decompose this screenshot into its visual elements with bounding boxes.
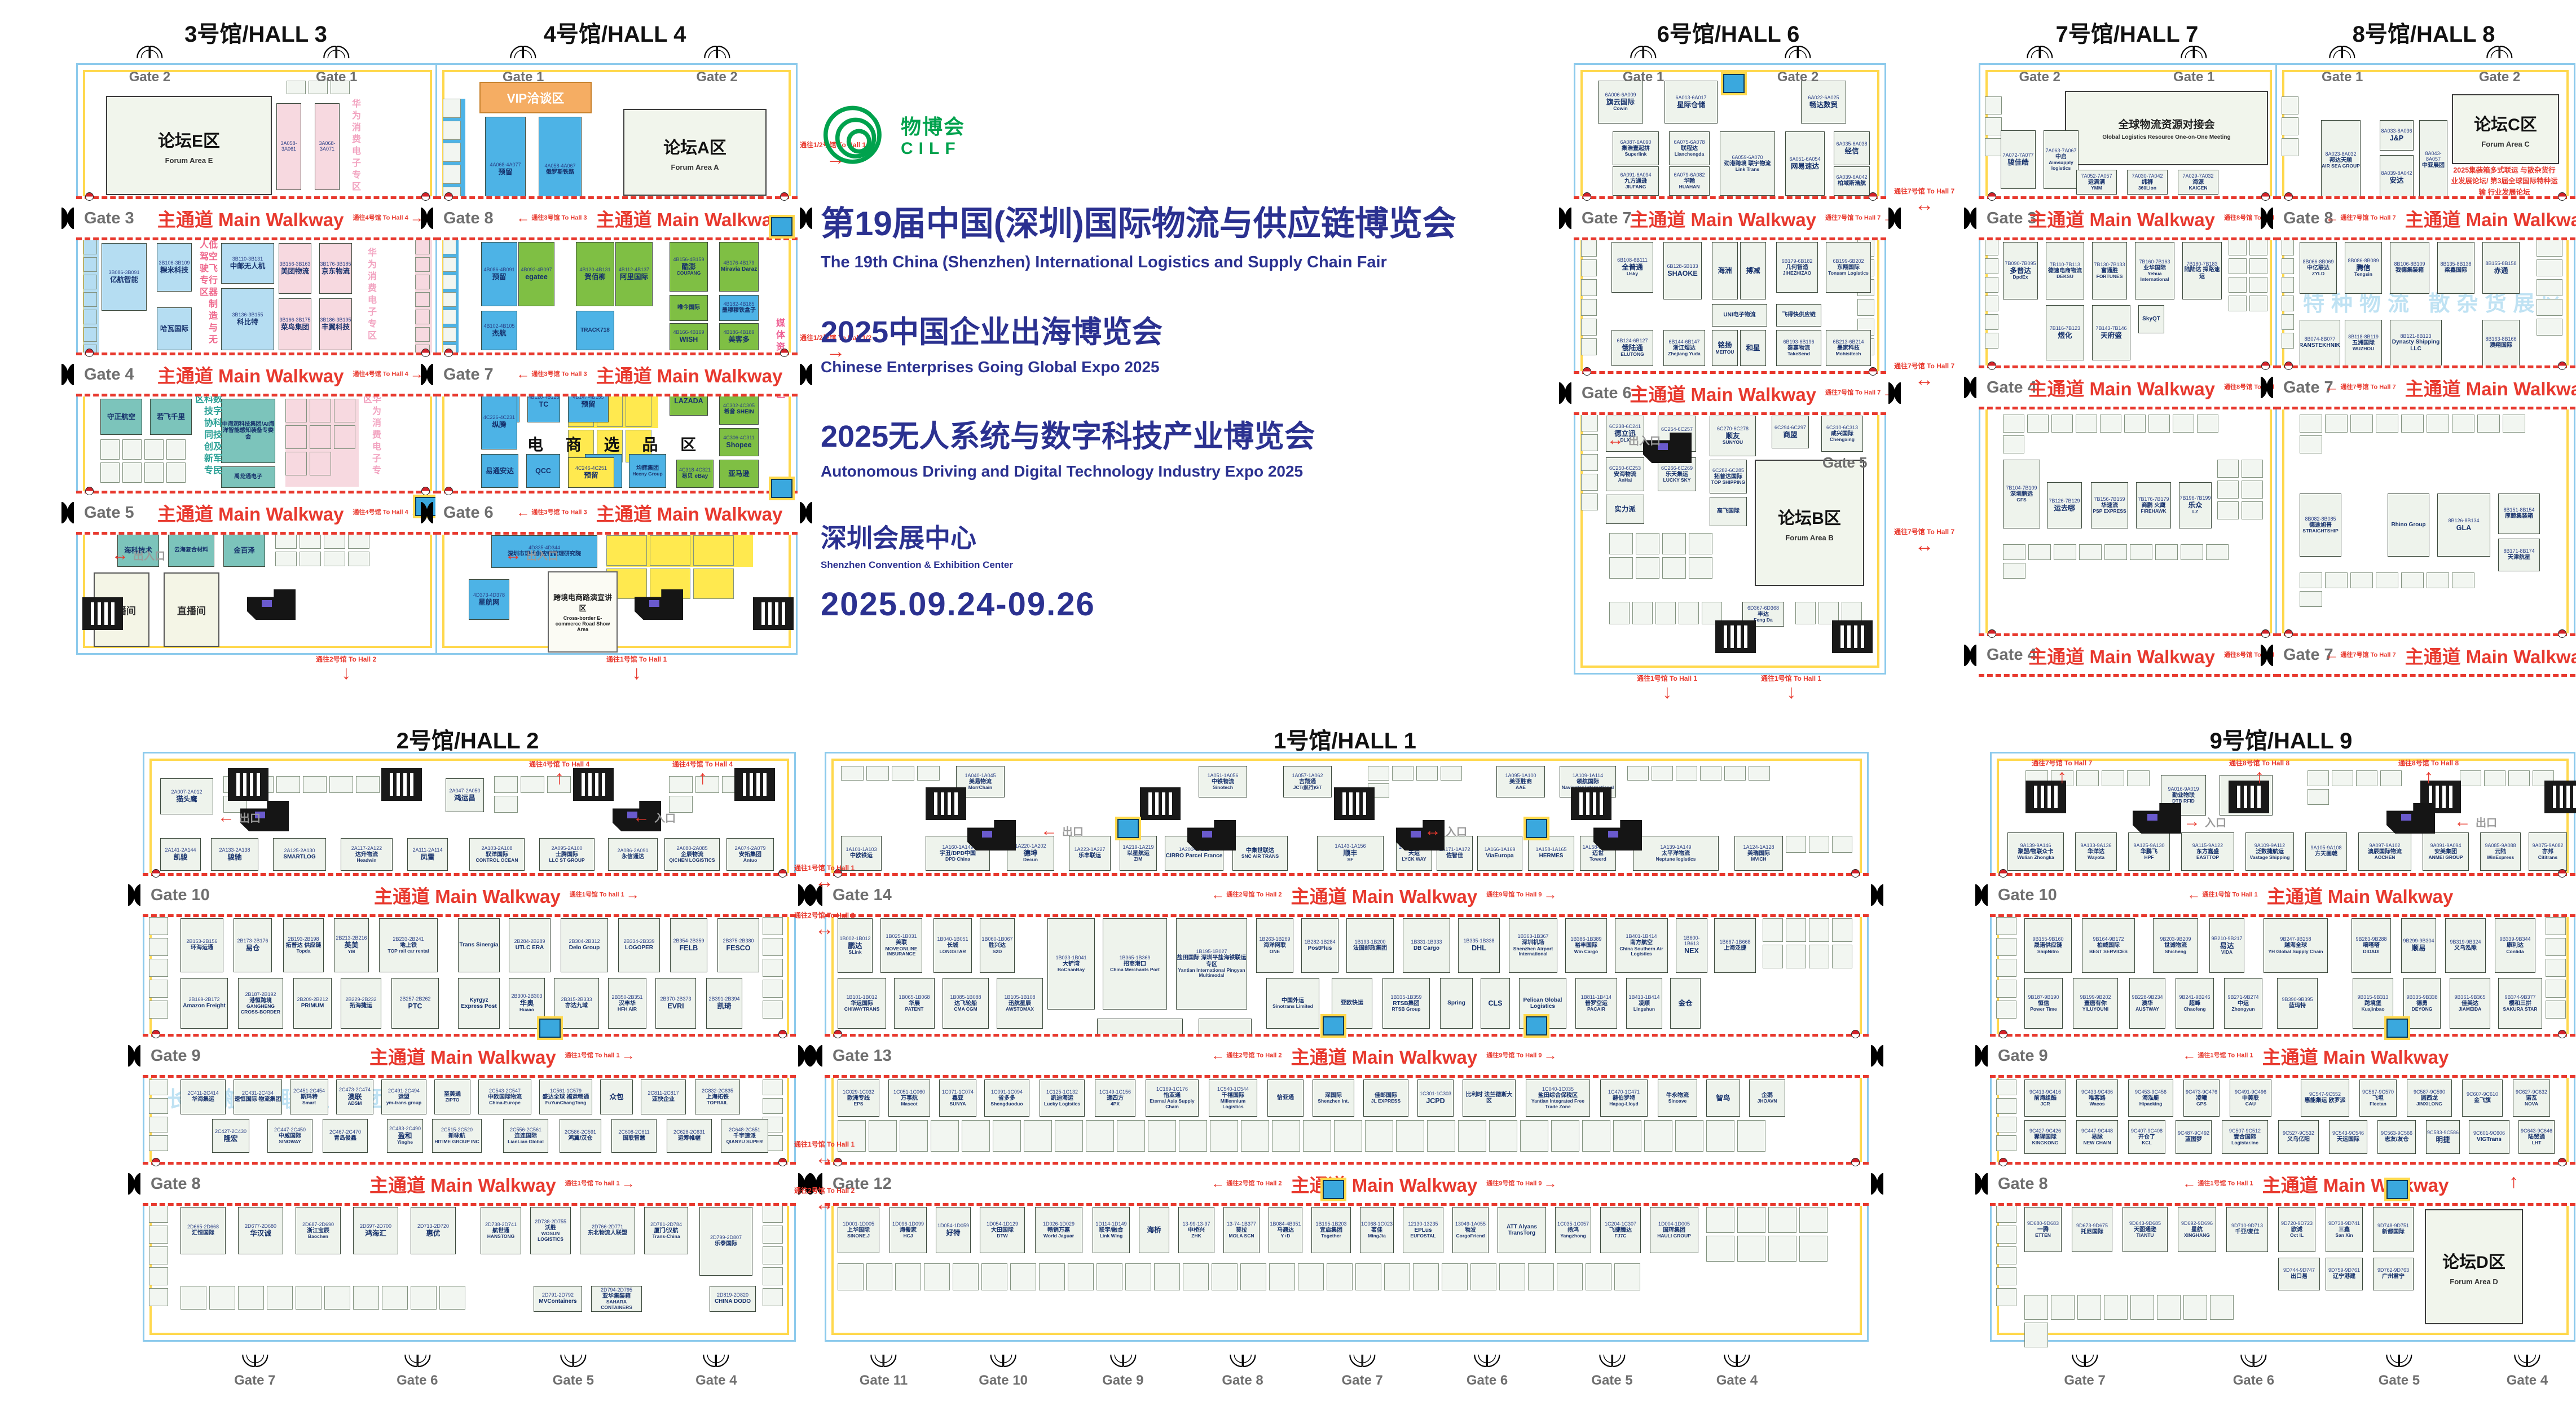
booth: 和星	[1740, 330, 1766, 366]
gate-label: Gate 1	[2173, 69, 2214, 85]
booth-sublabel: EPS	[853, 1101, 863, 1107]
booth: 6A039-6A042柏域斯浩航	[1834, 166, 1870, 196]
booth-label: LOGOPER	[625, 945, 653, 951]
booth: 9B164-9B172柏威国际BEST SERVICES	[2082, 918, 2135, 973]
booth	[209, 1286, 235, 1310]
booth-sublabel: HAULI GROUP	[1657, 1233, 1691, 1239]
booth-code: 1B065-1B068	[895, 995, 934, 1001]
booth-code: 4B120-4B131	[576, 267, 614, 273]
booth: 2C451-2C454斯玛特Smart	[290, 1079, 328, 1114]
booth	[2104, 1295, 2128, 1320]
booth-label: 海洲	[1718, 267, 1732, 275]
booth-sublabel: Yantian Integrated Free Trade Zone	[1526, 1099, 1589, 1109]
booth-code: 9D710-9D713	[2227, 1223, 2267, 1229]
booth-code: 9D759-9D761	[2326, 1268, 2362, 1273]
booth-code: 1C561-1C579	[540, 1089, 592, 1094]
bottom-gate: Gate 7	[234, 1351, 275, 1389]
vzone-area: 华为消费电子专区	[363, 394, 378, 488]
forklift-icon	[1187, 820, 1236, 850]
booth-code: 9B335-9B338	[2404, 995, 2440, 1001]
booth	[1662, 557, 1686, 579]
booth: 6B193-6B196泰嘉物流TakeSend	[1776, 330, 1821, 366]
booth-sublabel: DTB RFID	[2172, 799, 2195, 804]
booth: 1A051-1A056中铁物流Sinotech	[1199, 766, 1247, 797]
booth	[2537, 319, 2562, 336]
gate-pin-icon	[1988, 629, 1996, 638]
booth-label: 越海全球	[2284, 942, 2307, 949]
booth: 1B101-1B012华运国际CHIWAYTRANS	[838, 978, 886, 1029]
booth: 9C607-9C610金飞旗	[2462, 1079, 2503, 1117]
elevator-icon	[539, 1019, 561, 1038]
main-walkway-2: Gate 9← 通往1号馆 To Hall 1主通道 Main Walkway	[1990, 1034, 2575, 1078]
booth-code: 9D738-9D741	[2326, 1221, 2362, 1227]
booth-code: 2C648-2C651	[721, 1127, 768, 1133]
booth-code: 2A086-2A091	[609, 848, 657, 854]
booth: 1B040-1B051长城LONGSTAR	[933, 918, 972, 973]
direction-arrow-icon: ←	[633, 808, 650, 827]
booth	[2546, 1001, 2566, 1019]
booth-code: 9C543-9C546	[2330, 1131, 2367, 1136]
walkway-center: 主通道 Main Walkway通往7号馆 To Hall 7 →	[1640, 380, 1886, 407]
booth-code: 6A035-6A038	[1834, 142, 1869, 147]
stairs-icon	[734, 768, 775, 801]
booth: 1C029-1C032欧洲专线EPS	[838, 1079, 879, 1117]
booth-sublabel: Yangzhong	[1560, 1233, 1586, 1239]
gate-door-icon	[1110, 1351, 1136, 1367]
booth	[2376, 572, 2398, 588]
main-walkway-1: Gate 3主通道 Main Walkway通往8号馆 To Hall 8 →	[1979, 196, 2279, 240]
top-gate: Gate 2	[1777, 46, 1818, 85]
booth	[2308, 770, 2329, 786]
booth-label: GLA	[2456, 524, 2471, 532]
booth-sublabel: Shengduoduo	[990, 1101, 1023, 1107]
elevator-icon	[771, 479, 792, 498]
booth-code: 8B086-8B089	[2345, 258, 2381, 264]
booth	[2546, 980, 2566, 998]
booth-code: 9C507-9C512	[2222, 1129, 2267, 1134]
booth	[2054, 544, 2076, 560]
booth-sublabel: COUPANG	[677, 271, 701, 276]
booth-code: 9C583-9C586	[2427, 1130, 2459, 1136]
booth: 1B195-1B203宜启集团Together	[1311, 1207, 1351, 1253]
booth: 6A022-6A025畅达数贸	[1801, 81, 1846, 124]
booth: 2D794-2D795亚华集装箱SAHARA CONTAINERS	[591, 1286, 642, 1312]
booth-label: 鸿海汇	[365, 1229, 386, 1237]
booth	[1768, 1207, 1796, 1233]
booth-sublabel: AIR SEA GROUP	[2322, 164, 2360, 169]
booth	[144, 462, 164, 483]
gate-label: Gate 8	[1222, 1373, 1263, 1389]
booth: 6A006-6A009旗云国际Cowin	[1598, 81, 1643, 124]
gate-label-left: Gate 7	[435, 365, 501, 384]
booth	[1996, 1079, 2016, 1095]
booth-sublabel: QIANYU SUPER	[726, 1139, 763, 1144]
booth-label: 我德集装箱	[2396, 267, 2424, 274]
booth-sublabel: ZIM	[1134, 857, 1143, 862]
booth-code: 4B102-4B105	[482, 324, 517, 329]
booth-label: 柏域斯浩航	[1838, 180, 1866, 187]
gate-pin-icon	[1988, 362, 1996, 370]
booth-sublabel: WUZHOU	[2353, 346, 2374, 351]
booth-sublabel: TOP rail car rental	[388, 949, 429, 954]
booth: 8B126-8B134GLA	[2437, 493, 2490, 557]
booth-sublabel: Y+D	[1281, 1233, 1291, 1239]
elevator-icon	[2386, 1019, 2408, 1038]
booth-sublabel: Hipacking	[2139, 1101, 2163, 1107]
booth	[693, 535, 734, 566]
booth-code: 4C306-4C311	[720, 435, 758, 441]
booth-code: 6A051-6A054	[1786, 157, 1824, 162]
booth	[2282, 333, 2294, 349]
booth: 至美通ZIPTO	[434, 1079, 470, 1114]
booth-code: 2D799-2D807	[700, 1235, 752, 1241]
booth-cluster	[1996, 1205, 2020, 1306]
booth: 比利时 法兰德斯大区	[1463, 1079, 1516, 1117]
booth	[324, 552, 345, 566]
to-hall-arrow-icon: ↑	[2254, 767, 2264, 786]
booth-cluster	[763, 917, 786, 1024]
booth	[2217, 501, 2239, 519]
gate-label: Gate 1	[1623, 69, 1664, 85]
booth: 7B196-7B199乐众LZ	[2179, 482, 2212, 528]
booth-code: 8B074-8B077	[2300, 337, 2340, 342]
booth: 1C040-1C035盐田综合保税区Yantian Integrated Fre…	[1526, 1079, 1590, 1117]
booth-sublabel: YMM	[2091, 186, 2102, 191]
booth-code: 9B187-9B190	[2025, 995, 2062, 1001]
booth-cluster	[275, 534, 377, 568]
booth-label: 胜兴达	[989, 942, 1006, 949]
booth	[2460, 770, 2481, 786]
booth-code: 2B370-2B373	[656, 997, 695, 1002]
booth: 1C540-1C544千禧国际Millennium Logistics	[1209, 1079, 1257, 1117]
booth: 海桥	[1139, 1207, 1169, 1253]
booth	[100, 439, 120, 460]
gate-door-icon	[560, 1351, 586, 1367]
booth-label: 经信	[1844, 147, 1859, 155]
booth: 6A059-6A070劲港跨境 联宇物流Link Trans	[1720, 131, 1775, 196]
booth: 2C411-2C414华海集运	[180, 1079, 226, 1114]
booth-label: 搏减	[1746, 267, 1760, 275]
booth	[1985, 240, 1998, 255]
booth: 金仓	[1670, 978, 1701, 1029]
walkway-label: 主通道 Main Walkway	[2262, 1170, 2449, 1197]
booth-sublabel: WinExpress	[2487, 855, 2515, 860]
booth-label: LAZADA	[674, 397, 703, 405]
booth	[166, 439, 186, 460]
booth-sublabel: SLink	[848, 950, 861, 955]
booth-code: 9A016-9A019	[2161, 787, 2205, 792]
booth: 1A124-1A128美瑞国际MVICH	[1734, 836, 1783, 871]
booth-code: 4C318-4C321	[677, 468, 713, 473]
hall-8: 论坛C区Forum Area C2025集装箱多式联运 与散杂货行业发展论坛/ …	[2275, 63, 2575, 675]
booth-code: 4B086-4B091	[482, 267, 517, 273]
booth-sublabel: Huaao	[519, 1007, 534, 1012]
booth-label: 中海润科技集团/AI海洋智能感知装备专委会	[222, 421, 275, 441]
booth-sublabel: DIDADI	[2363, 949, 2379, 954]
entrance-label: ↔入口	[1424, 821, 1467, 840]
booth-label: 英美	[344, 941, 358, 949]
booth-code: 6A059-6A070	[1720, 155, 1774, 161]
booth	[285, 452, 307, 475]
booth-label: 运去哪	[2054, 504, 2075, 512]
hall-7-title: 7号馆/HALL 7	[2056, 16, 2199, 49]
booth	[2325, 572, 2348, 588]
booth: 9B319-9B324义乌泓隙	[2445, 918, 2486, 973]
booth-sublabel: ANMEI GROUP	[2429, 855, 2463, 860]
booth: 9D738-9D741三鑫San Xin	[2326, 1207, 2363, 1252]
walkway-note: 通往4号馆 To Hall 4 →	[353, 505, 424, 521]
booth	[1581, 493, 1598, 510]
booth-sublabel: MingJia	[1368, 1233, 1386, 1239]
booth-code: 9B241-9B246	[2176, 995, 2213, 1001]
booth: 3B166-3B175菜鸟集团	[279, 298, 311, 350]
booth: 7B143-7B146天府盛	[2092, 305, 2130, 360]
booth-code: 2C467-2C470	[323, 1130, 367, 1135]
gate-pin-icon	[2284, 362, 2293, 370]
booth: 7A072-7A077骏佳皓	[2001, 130, 2036, 189]
booth-sublabel: DpdEx	[2013, 275, 2028, 280]
booth-code: 4C226-4C231	[482, 415, 517, 421]
booth	[1581, 434, 1598, 451]
booth	[1644, 1120, 1672, 1152]
booth-sublabel: Win Cargo	[1574, 949, 1598, 954]
booth-sublabel: China-Europe	[489, 1100, 521, 1105]
booth-code: 2D713-2D720	[411, 1224, 455, 1229]
area-title: 论坛D区	[2442, 1248, 2505, 1273]
booth-cluster	[1763, 918, 1853, 1028]
booth-sublabel: Yantian International Pingyan Multimodal	[1177, 968, 1247, 979]
booth-code: 9C607-9C610	[2463, 1092, 2502, 1098]
booth-label: 众包	[609, 1093, 623, 1101]
booth-label: 星际仓储	[1677, 101, 1705, 109]
booth-label: 美团物流	[281, 267, 309, 275]
booth-code: 4B176-4B179	[720, 261, 758, 266]
booth: 2A086-2A091永信通达	[608, 838, 658, 871]
direction-arrow-icon: ←	[218, 808, 235, 827]
booth-code: 9A125-9A130	[2129, 843, 2169, 849]
booth: 9D710-9D713千亚/麦佳	[2226, 1207, 2268, 1252]
booth-label: QCC	[535, 467, 551, 475]
booth-code: 1A109-1A114	[1560, 773, 1615, 779]
to-hall-annotation: 通往4号馆 To Hall 4↑	[672, 760, 733, 787]
gate-label: Gate 11	[860, 1373, 908, 1389]
booth	[149, 1135, 168, 1151]
booth	[841, 766, 864, 781]
booth-code: 2B315-2B333	[554, 997, 598, 1003]
booth	[443, 240, 456, 254]
gate-pin-icon	[2284, 629, 2293, 638]
booth-code: 8A039-8A042	[2380, 171, 2413, 177]
booth	[415, 275, 430, 289]
area-subtitle: Forum Area A	[671, 163, 719, 171]
gate-door-icon	[1631, 46, 1657, 61]
forklift-icon	[967, 820, 1016, 850]
booth-label: 骏驰	[227, 853, 241, 861]
booth-code: 2D738-2D755	[531, 1219, 570, 1225]
booth-code: 3A058-3A061	[277, 141, 301, 152]
booth-label: PTC	[408, 1002, 422, 1010]
booth: 2C483-2C490盈和Yinghe	[387, 1119, 423, 1153]
booth	[1655, 602, 1676, 624]
booth	[443, 310, 456, 324]
booth-code: 7A072-7A077	[2001, 153, 2035, 158]
booth-code: 1C035-1C057	[1556, 1222, 1591, 1227]
booth-sublabel: MVICH	[1751, 857, 1766, 862]
booth-code: 6A006-6A009	[1599, 92, 1643, 98]
booth	[1985, 277, 1998, 293]
gate-label-left: Gate 3	[76, 209, 142, 228]
booth	[924, 1263, 950, 1290]
booth-sublabel: ZHK	[1191, 1233, 1201, 1239]
booth: ATT Alyans TransTorg	[1498, 1207, 1546, 1253]
booth-code: 2C586-2C591	[560, 1130, 601, 1135]
booth-label: 世诚物流	[2164, 942, 2187, 949]
booth-code: 1A057-1A062	[1284, 773, 1331, 779]
booth	[1520, 1120, 1548, 1152]
booth-label: EVRI	[667, 1002, 684, 1010]
revolving-door-icon	[1870, 1044, 1884, 1070]
booth-code: 12130-13235	[1403, 1222, 1443, 1227]
gate-door-icon	[1349, 1351, 1375, 1367]
booth: 9B210-9B217易达VIDA	[2209, 918, 2244, 973]
booth: 1A095-1A100美亚胜商AAE	[1496, 766, 1545, 797]
bottom-gate: Gate 10	[979, 1351, 1028, 1389]
booth: 9D762-9D763广州君宁	[2373, 1258, 2414, 1290]
booth: 2B153-2B156环海运通	[180, 918, 223, 972]
booth-sublabel: TOPRAIL	[707, 1100, 728, 1105]
booth-label: egatee	[525, 273, 548, 281]
booth-sublabel: Chaofeng	[2183, 1007, 2205, 1012]
bottom-gate: Gate 4	[2507, 1351, 2548, 1389]
booth: 9C643-9C646陆贸通LHT	[2518, 1120, 2555, 1154]
booth-code: 1B084-4B351	[1269, 1222, 1302, 1227]
booth-label: 隆宏	[223, 1135, 237, 1143]
booth-sublabel: JIAMEIDA	[2459, 1007, 2482, 1012]
to-hall-arrow-icon: ↓	[1662, 682, 1672, 702]
booth	[1786, 836, 1806, 853]
booth: 2B334-2B339LOGOPER	[618, 918, 660, 972]
booth	[1675, 1120, 1703, 1152]
booth-code: 1C071-1C074	[940, 1090, 976, 1095]
booth-label: 运筹帷幄	[678, 1135, 701, 1142]
booth	[763, 1001, 783, 1019]
gate-label-left: Gate 4	[76, 365, 142, 384]
booth-code: 2D687-2D690	[296, 1222, 340, 1228]
booth: 2D738-2D741航世通HANSTONG	[481, 1207, 521, 1254]
revolving-door-icon	[809, 1044, 823, 1070]
booth-code: 6C282-6C285	[1710, 468, 1746, 474]
booth: 2D766-2D771东北物流人联盟	[580, 1207, 635, 1254]
to-hall-arrow-icon: ↑	[2057, 767, 2067, 786]
to-hall-annotation: 通往7号馆 To Hall 7↔	[1894, 187, 1954, 214]
booth: 2D799-2D807乐泰国际	[699, 1207, 752, 1276]
booth-cluster	[1581, 240, 1599, 367]
booth-label: 方天画戟	[2315, 851, 2337, 858]
booth-sublabel: HCJ	[903, 1233, 913, 1239]
booth-sublabel: DPD China	[945, 857, 970, 862]
booth: 1B033-1B041大铲湾BoChanBay	[1047, 918, 1095, 1010]
booth-sublabel: San Xin	[2335, 1233, 2353, 1238]
gate-label: Gate 2	[696, 69, 737, 85]
booth-cluster	[2003, 544, 2251, 578]
booth: 12130-13235EPLusEUFOSTAL	[1403, 1207, 1443, 1253]
booth	[144, 439, 164, 460]
booth	[1832, 836, 1852, 853]
booth-code: 1A223-1A227	[1069, 847, 1110, 853]
booth	[149, 1098, 168, 1114]
booth-cluster	[1985, 240, 2001, 358]
booth	[1528, 1263, 1554, 1290]
booth	[1210, 1120, 1238, 1152]
booth-label: 纵腾	[492, 421, 506, 429]
booth	[1581, 240, 1597, 257]
main-walkway-1: Gate 7主通道 Main Walkway通往7号馆 To Hall 7 →	[1574, 196, 1886, 240]
walkway-label: 主通道 Main Walkway	[374, 882, 561, 909]
booth-code: 9D720-9D723	[2279, 1221, 2315, 1227]
booth-label: 长城	[947, 942, 958, 949]
booth-code: 2A074-2A079	[727, 846, 773, 852]
booth-sublabel: MOLA SCN	[1228, 1233, 1254, 1239]
booth: 9B199-9B202壹唐有你YILUYOUNI	[2073, 978, 2118, 1029]
booth-sublabel: SUNYA	[950, 1101, 966, 1107]
booth-code: 6B199-6B202	[1826, 259, 1870, 265]
booth	[2452, 415, 2474, 433]
booth-code: 9D692-9D696	[2178, 1221, 2216, 1227]
booth	[1985, 296, 1998, 311]
booth-label: Delo Group	[569, 945, 600, 951]
booth-code: 9B339-9B344	[2495, 937, 2535, 942]
entrance-label: ←入口	[633, 808, 676, 827]
booth: 1C204-1C307飞捷腾达FJ7C	[1600, 1207, 1641, 1253]
booth-code: 3B156-3B163	[279, 262, 311, 267]
booth-code: 6A079-6A082	[1670, 173, 1709, 178]
booth-label: 飞得快供应链	[1782, 312, 1816, 319]
to-hall-arrow-icon: ↓	[341, 663, 351, 682]
booth-label: 广州君宁	[2382, 1273, 2405, 1280]
gate-pin-icon	[2558, 1030, 2566, 1038]
booth-sublabel: JL EXPRESS	[1371, 1099, 1401, 1104]
booth-sublabel: PSP EXPRESS	[2093, 509, 2126, 514]
booth-code: 1C068-1C023	[1360, 1222, 1393, 1227]
booth	[2003, 544, 2025, 560]
main-walkway-1: Gate 8← 通往7号馆 To Hall 7主通道 Main Walkway	[2275, 196, 2575, 240]
booth-label: 金百泽	[234, 547, 255, 554]
booth-sublabel: LZ	[2192, 509, 2198, 514]
bottom-gate: Gate 7	[1341, 1351, 1382, 1389]
booth-code: 2A080-2A085	[665, 846, 719, 852]
gate-pin-icon	[780, 349, 789, 357]
gate-pin-icon	[778, 869, 787, 878]
booth-code: 9A091-9A094	[2423, 843, 2468, 849]
walkway-label: 主通道 Main Walkway	[596, 361, 783, 388]
booth-code: 1A101-1A103	[842, 847, 881, 853]
booth: 均辉集团Hecny Group	[629, 454, 666, 488]
booth: 守正航空	[100, 399, 142, 435]
booth	[1609, 533, 1633, 554]
booth-sublabel: Wacos	[2089, 1101, 2104, 1107]
booth-label: Kyrgyz Express Post	[459, 997, 499, 1010]
hall-9-title: 9号馆/HALL 9	[2210, 722, 2353, 755]
booth	[1179, 1120, 1207, 1152]
booth	[1706, 1207, 1734, 1233]
venue-cn: 深圳会展中心	[821, 518, 1548, 555]
booth-code: 2B350-2B351	[609, 995, 646, 1001]
booth: 1B105-1B108迅航星辰AWSTOMAX	[997, 978, 1043, 1029]
booth	[1551, 1120, 1579, 1152]
booth: 9D720-9D723欧诚Oct IL	[2278, 1207, 2315, 1252]
booth	[626, 394, 651, 427]
booth	[2024, 1323, 2048, 1347]
